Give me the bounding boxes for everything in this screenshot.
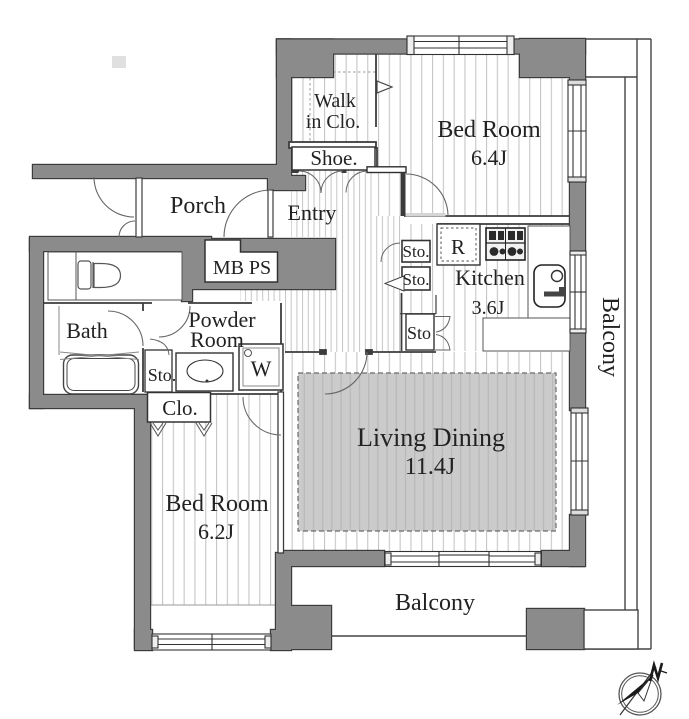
svg-text:Sto: Sto bbox=[407, 323, 431, 343]
svg-text:3.6J: 3.6J bbox=[472, 297, 505, 319]
svg-text:Porch: Porch bbox=[170, 193, 226, 219]
svg-text:in Clo.: in Clo. bbox=[306, 111, 360, 133]
svg-text:Kitchen: Kitchen bbox=[455, 265, 525, 290]
svg-text:Entry: Entry bbox=[288, 200, 337, 225]
svg-text:Walk: Walk bbox=[314, 90, 356, 112]
svg-text:6.4J: 6.4J bbox=[471, 145, 508, 170]
svg-text:Sto.: Sto. bbox=[148, 365, 177, 385]
svg-text:MB PS: MB PS bbox=[213, 257, 271, 279]
svg-text:Balcony: Balcony bbox=[597, 297, 623, 377]
svg-text:6.2J: 6.2J bbox=[198, 519, 235, 544]
svg-text:Sto.: Sto. bbox=[403, 270, 430, 289]
svg-text:Room: Room bbox=[190, 327, 244, 352]
svg-text:11.4J: 11.4J bbox=[405, 454, 455, 480]
svg-text:Bath: Bath bbox=[66, 318, 108, 343]
svg-text:Bed Room: Bed Room bbox=[437, 117, 541, 143]
svg-text:Living Dining: Living Dining bbox=[357, 423, 505, 452]
svg-text:Shoe.: Shoe. bbox=[310, 146, 357, 170]
svg-text:Clo.: Clo. bbox=[162, 396, 198, 420]
svg-text:R: R bbox=[451, 235, 465, 259]
svg-text:Sto.: Sto. bbox=[403, 242, 430, 261]
svg-text:Balcony: Balcony bbox=[395, 590, 475, 616]
svg-text:Bed Room: Bed Room bbox=[165, 491, 269, 517]
svg-text:W: W bbox=[251, 356, 272, 381]
